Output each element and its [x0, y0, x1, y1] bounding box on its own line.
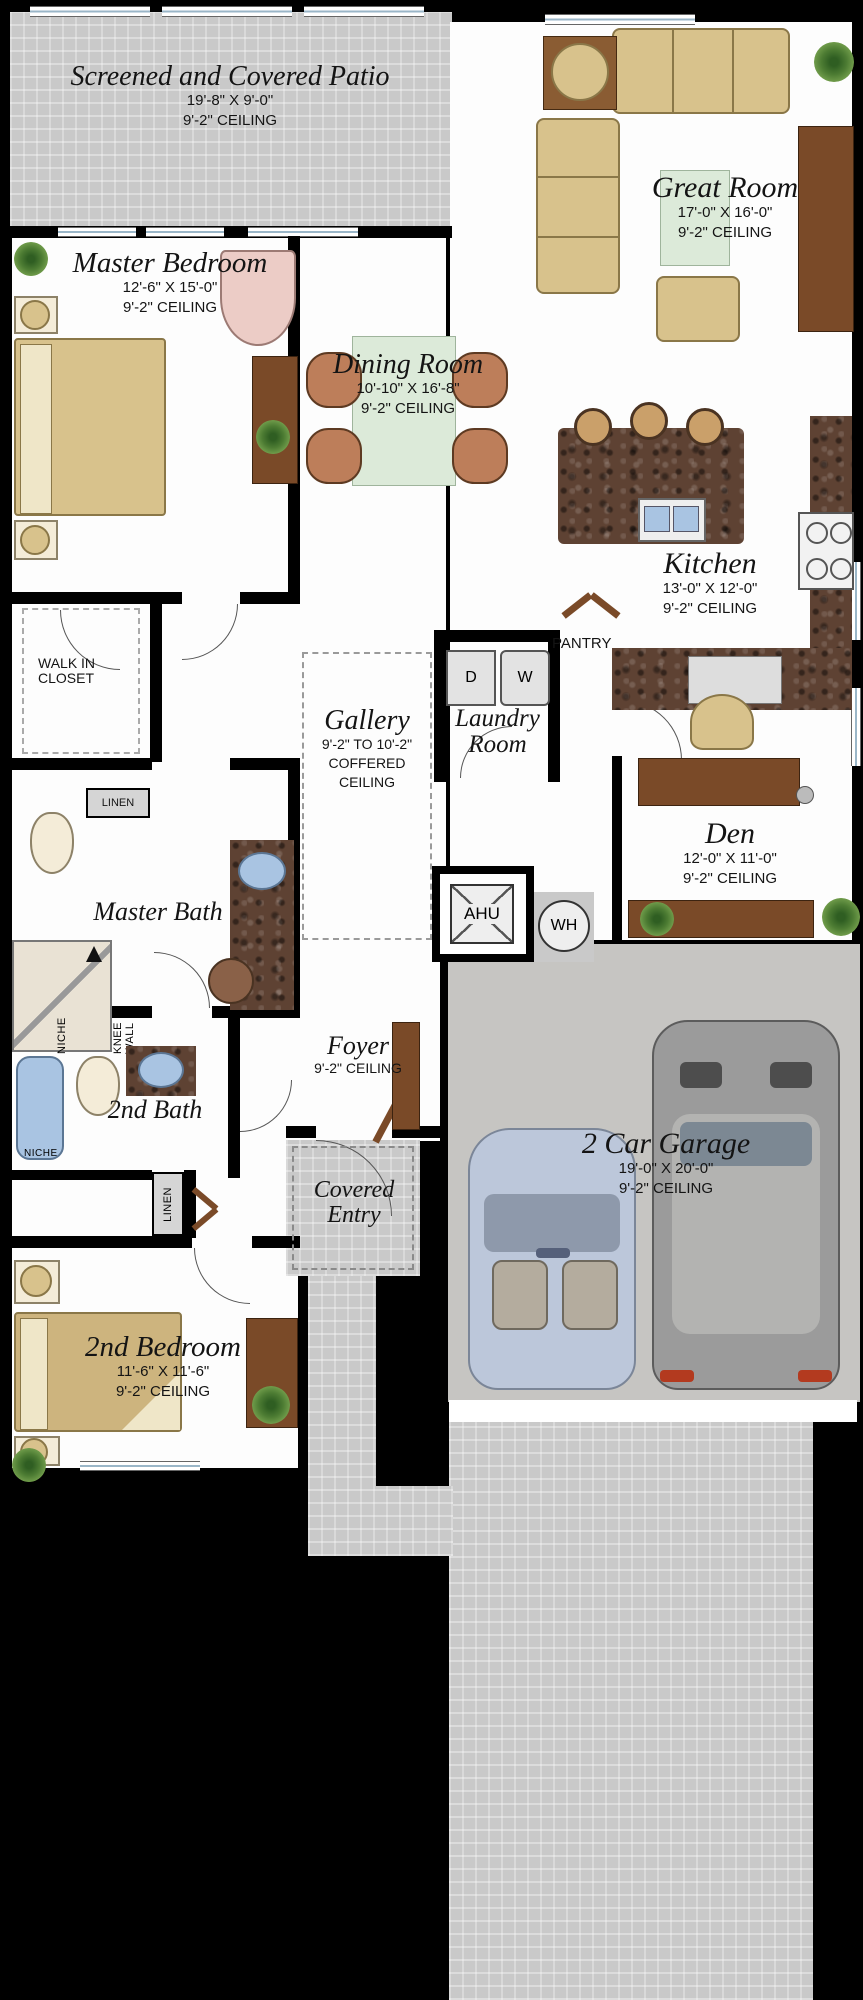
room-ceiling: 9'-2" CEILING — [318, 399, 498, 419]
desk-chair — [690, 694, 754, 750]
plant — [256, 420, 290, 454]
garage-label: 2 Car Garage 19'-0" X 20'-0" 9'-2" CEILI… — [516, 1128, 816, 1200]
garage-apron — [449, 1400, 857, 1422]
bar-stool — [574, 408, 612, 446]
wall — [12, 758, 152, 770]
kitchen-label: Kitchen 13'-0" X 12'-0" 9'-2" CEILING — [590, 548, 830, 620]
second-bedroom-window — [80, 1461, 200, 1471]
room-name: Master Bath — [78, 898, 238, 925]
ceiling-range: 9'-2" TO 10'-2" — [296, 735, 438, 754]
room-name: 2 Car Garage — [516, 1128, 816, 1159]
master-bedroom-label: Master Bedroom 12'-6" X 15'-0" 9'-2" CEI… — [30, 248, 310, 319]
room-name: Great Room — [600, 172, 850, 203]
garage-wall — [440, 936, 448, 1404]
wall — [150, 604, 162, 762]
linen-label: LINEN — [162, 1187, 174, 1222]
washer-label: W — [517, 669, 532, 687]
bathtub — [16, 1056, 64, 1160]
patio-screen-window — [304, 6, 424, 17]
dryer-label: D — [465, 669, 477, 687]
den-side-window — [851, 688, 861, 766]
room-name: Den — [640, 818, 820, 849]
room-ceiling: 9'-2" CEILING — [600, 223, 850, 243]
sofa — [612, 28, 790, 114]
vanity-sink — [238, 852, 286, 890]
dining-chair — [452, 428, 508, 484]
wall — [240, 592, 300, 604]
den-label: Den 12'-0" X 11'-0" 9'-2" CEILING — [640, 818, 820, 890]
room-dims: 10'-10" X 16'-8" — [318, 379, 498, 399]
bar-stool — [686, 408, 724, 446]
dining-chair — [306, 428, 362, 484]
ahu-label: AHU — [462, 904, 502, 924]
room-name: Covered Entry — [290, 1178, 418, 1228]
laundry-wall — [434, 630, 560, 642]
room-ceiling: 9'-2" CEILING — [288, 1059, 428, 1078]
room-dims: 19'-0" X 20'-0" — [516, 1159, 816, 1179]
walk-in-closet-label: WALK IN CLOSET — [38, 656, 138, 687]
plant — [640, 902, 674, 936]
room-ceiling: 9'-2" CEILING — [28, 1382, 298, 1402]
table-lamp — [551, 43, 609, 101]
master-bedroom-window — [58, 227, 136, 237]
laundry-label: Laundry Room — [430, 706, 565, 758]
wall — [228, 1012, 240, 1178]
desk — [638, 758, 800, 806]
toilet — [30, 812, 74, 874]
room-name: Laundry Room — [430, 706, 565, 758]
room-dims: 11'-6" X 11'-6" — [28, 1362, 298, 1382]
room-ceiling: 9'-2" CEILING — [640, 869, 820, 889]
second-bath-label: 2nd Bath — [90, 1096, 220, 1123]
master-bedroom-window — [146, 227, 224, 237]
linen-label: LINEN — [102, 797, 134, 809]
wall — [12, 592, 182, 604]
wall — [12, 1236, 192, 1248]
room-name: Dining Room — [318, 350, 498, 379]
foyer-label: Foyer 9'-2" CEILING — [288, 1032, 428, 1078]
vanity-sink — [138, 1052, 184, 1088]
room-name: Screened and Covered Patio — [70, 62, 390, 91]
covered-entry-label: Covered Entry — [290, 1178, 418, 1228]
gallery-coffered-outline — [302, 652, 432, 940]
kitchen-sink — [638, 498, 706, 542]
shower-niche-label: NICHE — [56, 996, 68, 1054]
patio-screen-window — [30, 6, 150, 17]
driveway — [449, 1422, 813, 2000]
plant — [12, 1448, 46, 1482]
great-room-bay-window — [545, 14, 695, 25]
ahu-unit: AHU — [450, 884, 514, 944]
room-name: 2nd Bath — [90, 1096, 220, 1123]
room-ceiling: 9'-2" CEILING — [590, 599, 830, 619]
plant — [814, 42, 854, 82]
ceiling-type: COFFERED — [296, 754, 438, 773]
room-ceiling: 9'-2" CEILING — [30, 298, 310, 318]
room-name: Gallery — [296, 706, 438, 735]
water-heater: WH — [538, 900, 590, 952]
floor-plan: Screened and Covered Patio 19'-8" X 9'-0… — [0, 0, 863, 2000]
desk-accessory — [796, 786, 814, 804]
gallery-label: Gallery 9'-2" TO 10'-2" COFFERED CEILING — [296, 706, 438, 792]
patio-label: Screened and Covered Patio 19'-8" X 9'-0… — [70, 62, 390, 132]
room-dims: 12'-6" X 15'-0" — [30, 278, 310, 298]
room-dims: 17'-0" X 16'-0" — [600, 203, 850, 223]
second-bedroom-label: 2nd Bedroom 11'-6" X 11'-6" 9'-2" CEILIN… — [28, 1332, 298, 1403]
room-name: Foyer — [288, 1032, 428, 1059]
foyer-front-wall — [286, 1126, 316, 1138]
lamp — [20, 1265, 52, 1297]
room-name: Kitchen — [590, 548, 830, 579]
great-room-label: Great Room 17'-0" X 16'-0" 9'-2" CEILING — [600, 172, 850, 244]
linen-closet: LINEN — [86, 788, 150, 818]
room-dims: 13'-0" X 12'-0" — [590, 579, 830, 599]
makeup-seat — [208, 958, 254, 1004]
bar-stool — [630, 402, 668, 440]
plant — [822, 898, 860, 936]
pantry-label: PANTRY — [552, 636, 644, 653]
master-bed — [14, 338, 166, 516]
room-dims: 19'-8" X 9'-0" — [70, 91, 390, 111]
armchair — [656, 276, 740, 342]
den-wall — [612, 756, 622, 940]
hall-linen-closet: LINEN — [152, 1172, 184, 1236]
dryer: D — [446, 650, 496, 706]
patio-screen-window — [162, 6, 292, 17]
great-room-window — [248, 227, 358, 237]
room-dims: 12'-0" X 11'-0" — [640, 849, 820, 869]
room-ceiling: 9'-2" CEILING — [70, 111, 390, 131]
room-ceiling: 9'-2" CEILING — [516, 1179, 816, 1199]
room-name: Master Bedroom — [30, 248, 310, 278]
ceiling-type: CEILING — [296, 773, 438, 792]
washer: W — [500, 650, 550, 706]
room-name: 2nd Bedroom — [28, 1332, 298, 1362]
walkway-connector — [308, 1486, 453, 1556]
knee-wall-label: KNEE WALL — [112, 992, 136, 1054]
car-suv — [652, 1020, 840, 1390]
master-bath-label: Master Bath — [78, 898, 238, 925]
lamp — [20, 525, 50, 555]
tub-niche-label: NICHE — [24, 1148, 58, 1198]
wh-label: WH — [551, 917, 578, 935]
dining-room-label: Dining Room 10'-10" X 16'-8" 9'-2" CEILI… — [318, 350, 498, 420]
